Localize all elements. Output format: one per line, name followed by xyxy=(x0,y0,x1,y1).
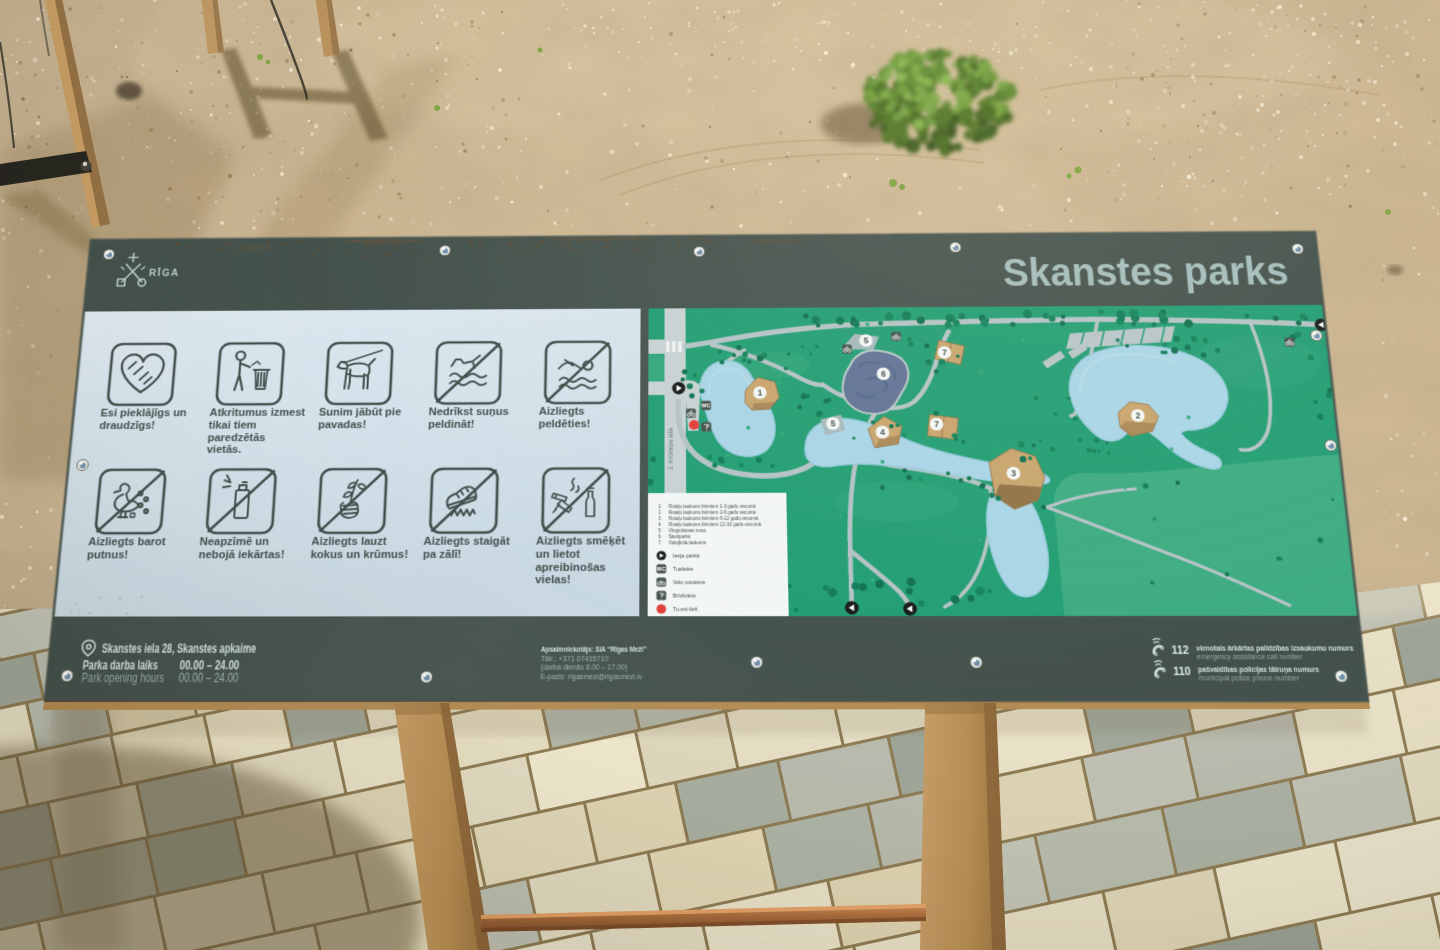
svg-text:Rotaļu laukums bērniem 2-6 gad: Rotaļu laukums bērniem 2-6 gadu vecumā xyxy=(669,510,757,516)
svg-text:emergency assistance call numb: emergency assistance call number xyxy=(1197,654,1304,662)
svg-text:WC: WC xyxy=(657,567,666,573)
svg-text:Parka darba laiks: Parka darba laiks xyxy=(82,659,158,673)
svg-text:Ieeja parkā: Ieeja parkā xyxy=(673,553,700,560)
svg-text:J. Krūmiņa iela: J. Krūmiņa iela xyxy=(668,427,675,470)
svg-text:2: 2 xyxy=(1135,411,1141,421)
svg-text:110: 110 xyxy=(1173,665,1192,679)
svg-text:Velo novietne: Velo novietne xyxy=(673,580,706,587)
svg-text:Volejbola laukums: Volejbola laukums xyxy=(669,540,706,546)
svg-text:pašvaldības policijas tālruņa: pašvaldības policijas tālruņa numurs xyxy=(1198,666,1320,674)
svg-text:Skeitparks: Skeitparks xyxy=(669,534,691,540)
svg-text:Rotaļu laukums bērniem 6-12 ga: Rotaļu laukums bērniem 6-12 gadu vecumā xyxy=(669,516,760,522)
svg-text:E-pasts: rigasmezi@rigasmezi.l: E-pasts: rigasmezi@rigasmezi.lv xyxy=(540,673,642,681)
svg-text:vienotais ārkārtas palīdzības: vienotais ārkārtas palīdzības izsaukumu … xyxy=(1196,645,1354,653)
svg-text:WC: WC xyxy=(701,403,711,409)
svg-text:7: 7 xyxy=(942,348,947,357)
svg-text:00.00 – 24.00: 00.00 – 24.00 xyxy=(178,672,239,686)
svg-text:Tualetes: Tualetes xyxy=(673,566,694,573)
svg-text:Brīvkrāns: Brīvkrāns xyxy=(673,593,697,600)
svg-text:Skanstes iela 28, Skanstes apk: Skanstes iela 28, Skanstes apkaime xyxy=(101,643,257,657)
svg-text:municipal police phone number: municipal police phone number xyxy=(1198,675,1300,683)
svg-text:RĪGA: RĪGA xyxy=(149,268,181,278)
svg-text:Tu esi šeit: Tu esi šeit xyxy=(673,607,698,614)
svg-text:Tālr.: +371 67415710: Tālr.: +371 67415710 xyxy=(541,656,609,664)
svg-text:Park opening hours: Park opening hours xyxy=(81,672,165,686)
svg-text:(darba dienās 8.00 – 17.00): (darba dienās 8.00 – 17.00) xyxy=(541,664,628,672)
svg-text:Rotaļu laukums bērniem 12-16 g: Rotaļu laukums bērniem 12-16 gadu vecumā xyxy=(669,522,762,528)
svg-text:Aizliegtspeldēties!: Aizliegtspeldēties! xyxy=(538,407,590,431)
svg-text:7: 7 xyxy=(934,419,939,429)
svg-text:Skanstes parks: Skanstes parks xyxy=(1002,249,1291,295)
svg-text:00.00 – 24.00: 00.00 – 24.00 xyxy=(179,659,240,673)
svg-text:Vingrošanas zona: Vingrošanas zona xyxy=(669,528,707,534)
svg-text:Rotaļu laukums bērniem 1-3 gad: Rotaļu laukums bērniem 1-3 gadu vecumā xyxy=(669,504,757,510)
svg-text:Apsaimniekotājs: SIA “Rīgas Me: Apsaimniekotājs: SIA “Rīgas Meži” xyxy=(541,646,647,654)
svg-text:112: 112 xyxy=(1171,644,1189,658)
